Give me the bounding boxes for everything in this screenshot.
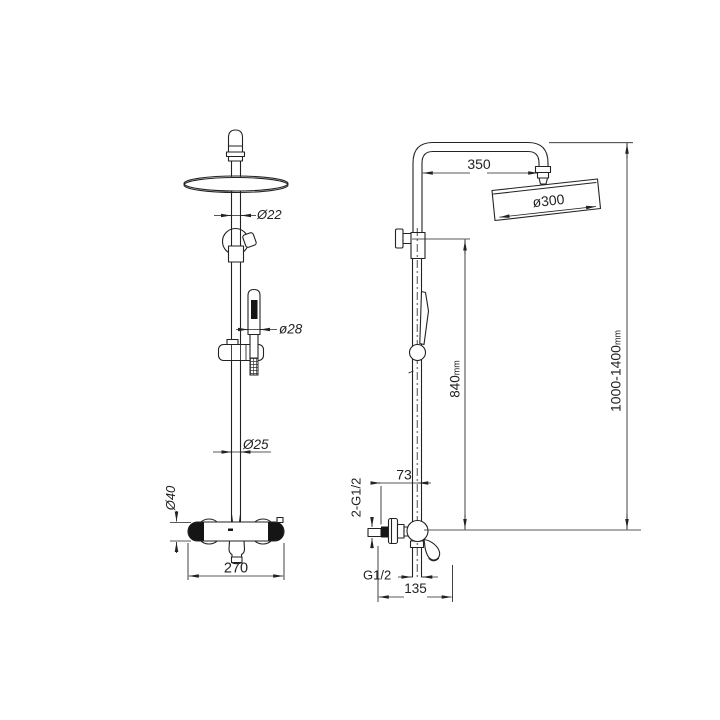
front-view: Ø22 ø28 Ø25 Ø40 270 bbox=[163, 130, 303, 580]
dim-label-inlet-connections: 2-G1/2 bbox=[349, 478, 364, 518]
dim-arm-reach: 350 bbox=[423, 156, 538, 173]
dim-label-overall-height: 1000-1400mm bbox=[608, 330, 624, 412]
riser-height-value: 840 bbox=[448, 375, 463, 398]
dim-handshower-diameter: ø28 bbox=[236, 322, 303, 337]
overall-height-value: 1000-1400 bbox=[608, 345, 624, 412]
wall-bracket-side bbox=[396, 229, 413, 248]
hand-shower-front bbox=[248, 290, 260, 376]
dim-label-handshower: ø28 bbox=[279, 322, 303, 337]
dim-label-wall-to-center: 73 bbox=[396, 467, 412, 483]
dim-label-arm-reach: 350 bbox=[467, 156, 491, 172]
dim-inlet-connections: 2-G1/2 bbox=[349, 478, 373, 549]
dim-pipe-top-diameter: Ø22 bbox=[214, 207, 282, 222]
riser-height-unit: mm bbox=[452, 360, 462, 375]
hand-shower-side bbox=[409, 292, 429, 374]
dim-valve-body-diameter: Ø40 bbox=[163, 485, 191, 553]
drawing-page: Ø22 ø28 Ø25 Ø40 270 bbox=[0, 0, 720, 720]
dim-label-valve-body: Ø40 bbox=[163, 485, 178, 511]
mixer-valve-front bbox=[188, 518, 284, 564]
dim-riser-diameter: Ø25 bbox=[213, 437, 271, 452]
mixer-valve-side bbox=[368, 519, 440, 561]
shower-head-disc bbox=[184, 176, 288, 193]
technical-drawing-canvas: Ø22 ø28 Ø25 Ø40 270 bbox=[0, 0, 720, 720]
dim-wall-to-center: 73 bbox=[372, 467, 431, 525]
dim-label-pipe-top: Ø22 bbox=[256, 207, 282, 222]
side-view: ø300 350 bbox=[349, 143, 642, 603]
dim-label-riser-height: 840mm bbox=[448, 360, 463, 398]
head-ball-joint bbox=[536, 167, 551, 185]
dim-riser-height: 840mm bbox=[412, 239, 470, 530]
dim-label-riser: Ø25 bbox=[242, 437, 269, 452]
top-cap bbox=[227, 130, 245, 161]
dim-label-valve-width: 270 bbox=[224, 561, 248, 577]
dim-label-base-depth: 135 bbox=[404, 581, 427, 596]
pivot-bracket bbox=[223, 229, 257, 263]
overall-height-unit: mm bbox=[613, 330, 623, 345]
dim-label-outlet-connection: G1/2 bbox=[363, 568, 391, 583]
